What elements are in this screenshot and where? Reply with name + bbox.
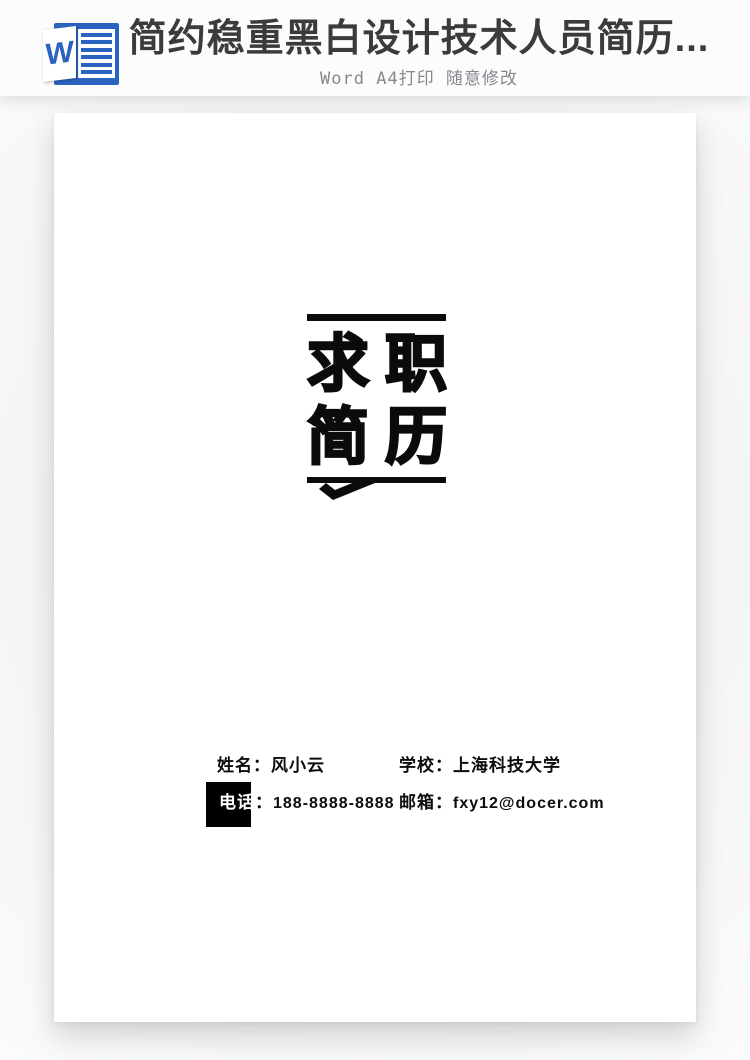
contact-school: 学校：上海科技大学 (399, 751, 561, 776)
phone-label: 电话 (219, 793, 255, 812)
logo-char: 职 (385, 329, 447, 400)
logo-char: 历 (385, 402, 447, 473)
logo-char: 简 (307, 402, 369, 473)
contact-phone: 电话：188-8888-8888 (219, 788, 395, 813)
preview-header: W 简约稳重黑白设计技术人员简历... Word A4打印 随意修改 (0, 0, 750, 96)
template-title: 简约稳重黑白设计技术人员简历... (129, 19, 710, 59)
logo-bottom-line-with-tail (307, 477, 446, 503)
word-icon: W (41, 23, 119, 85)
resume-logo: 求 职 简 历 (307, 314, 447, 503)
template-subtitle: Word A4打印 随意修改 (129, 64, 710, 89)
name-value: 风小云 (271, 756, 325, 775)
word-icon-folded-page: W (43, 26, 76, 82)
document-page: 求 职 简 历 姓名：风小云 学校：上海科技大学 电话：188-8888-888… (54, 113, 696, 1022)
email-value: fxy12@docer.com (453, 795, 605, 812)
word-icon-document-lines (78, 29, 115, 78)
logo-top-bar (307, 314, 446, 321)
contact-email: 邮箱：fxy12@docer.com (399, 788, 605, 813)
email-label: 邮箱： (399, 793, 453, 812)
phone-value: 188-8888-8888 (273, 795, 395, 812)
header-text-block: 简约稳重黑白设计技术人员简历... Word A4打印 随意修改 (129, 19, 710, 89)
word-icon-letter: W (45, 35, 73, 72)
logo-row-2: 简 历 (307, 402, 447, 473)
school-value: 上海科技大学 (453, 756, 561, 775)
logo-char: 求 (307, 329, 369, 400)
phone-colon: ： (255, 793, 273, 812)
logo-row-1: 求 职 (307, 329, 447, 400)
school-label: 学校： (399, 756, 453, 775)
name-label: 姓名： (217, 756, 271, 775)
contact-name: 姓名：风小云 (217, 751, 325, 776)
